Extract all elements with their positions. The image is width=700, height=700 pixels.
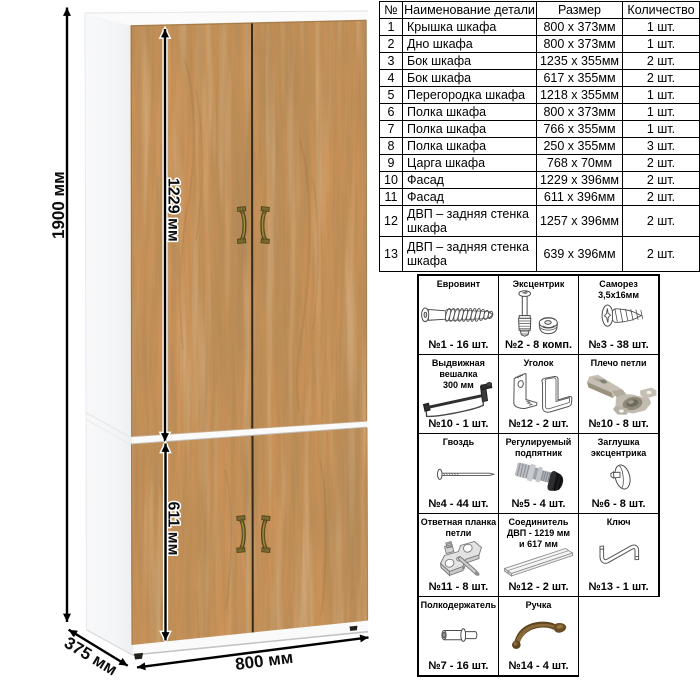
svg-text:611 мм: 611 мм: [165, 502, 182, 556]
svg-text:800 мм: 800 мм: [234, 648, 294, 674]
svg-text:1229 мм: 1229 мм: [165, 178, 182, 242]
svg-text:1900 мм: 1900 мм: [49, 171, 68, 239]
